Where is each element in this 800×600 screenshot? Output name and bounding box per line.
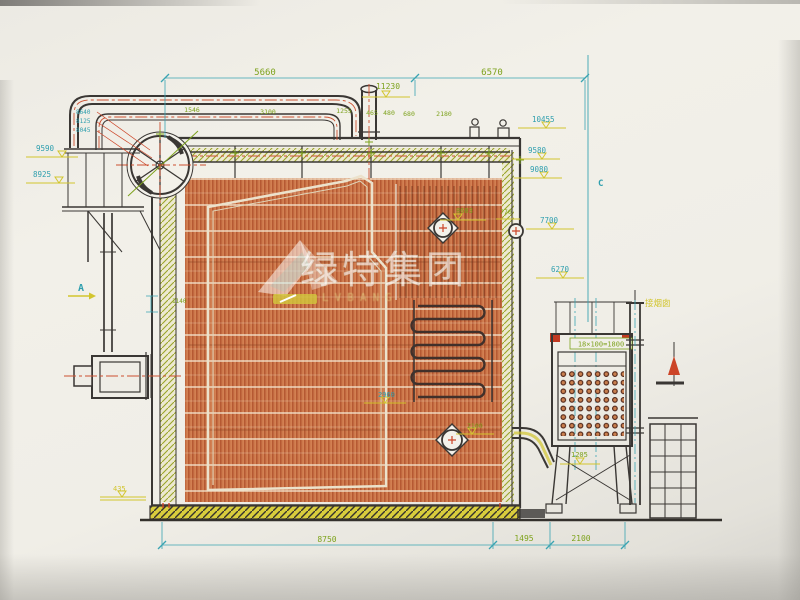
elev-right-e: 6270 (551, 265, 570, 274)
photo-edge-shadow-right (778, 40, 800, 600)
dim-top-left: 5660 (254, 68, 276, 78)
dim-row-6: 2180 (436, 110, 452, 118)
int-770: 770 (500, 208, 512, 216)
section-marker-a: A (78, 283, 84, 294)
elev-left-c: 8045 (76, 127, 91, 134)
economizer-tube-label: 18×100=1800 (578, 341, 624, 349)
elev-right-b: 9580 (528, 146, 547, 155)
int-1140: 1140 (172, 298, 187, 305)
red-flag-marker (668, 356, 680, 375)
elev-left-b: 8125 (76, 118, 91, 125)
elev-left-d: 9590 (36, 144, 55, 153)
elev-right-d: 7700 (540, 216, 559, 225)
dim-row-2: 1255 (336, 107, 352, 115)
int-2960: 2960 (378, 391, 395, 399)
dim-row-0: 1546 (184, 106, 200, 114)
photo-edge-shadow-top (0, 0, 260, 6)
manhole-icon (509, 224, 523, 238)
to-chimney-note: 接烟囱 (645, 298, 671, 309)
watermark-subtext: LVBANG (322, 291, 398, 304)
dim-bottom-1: 8750 (317, 535, 336, 544)
dim-row-5: 680 (403, 110, 415, 118)
dim-row-3: 465 (366, 109, 378, 117)
photographed-blueprint: 18×100=1800 绿特集团 LVBANG 5660 (0, 0, 800, 600)
int-1205: 1205 (571, 451, 588, 459)
elev-left-e: 8925 (33, 170, 51, 179)
section-marker-c: C (598, 179, 603, 189)
level-top: 11230 (376, 82, 400, 91)
flue-duct (512, 428, 554, 468)
boiler-side-elevation-drawing: 18×100=1800 绿特集团 LVBANG 5660 (0, 0, 800, 600)
dim-row-1: 3100 (260, 108, 276, 116)
elev-left-a: 8640 (76, 109, 91, 116)
photo-edge-shadow-bottom (0, 554, 800, 600)
photo-edge-shadow-topright (500, 0, 800, 4)
dim-bottom-2: 1495 (514, 534, 533, 543)
economizer: 18×100=1800 (546, 298, 636, 513)
elev-right-a: 10455 (532, 115, 555, 124)
int-435: 435 (113, 485, 126, 493)
photo-edge-shadow-left (0, 80, 14, 600)
watermark-text: 绿特集团 (300, 248, 468, 292)
dim-bottom-3: 2100 (571, 534, 590, 543)
dim-row-4: 480 (383, 109, 395, 117)
int-2100: 2100 (467, 422, 483, 430)
int-8603: 8603 (456, 207, 473, 215)
elev-right-c: 9080 (530, 165, 549, 174)
dim-top-right: 6570 (481, 68, 503, 78)
stair-tower (648, 342, 698, 518)
